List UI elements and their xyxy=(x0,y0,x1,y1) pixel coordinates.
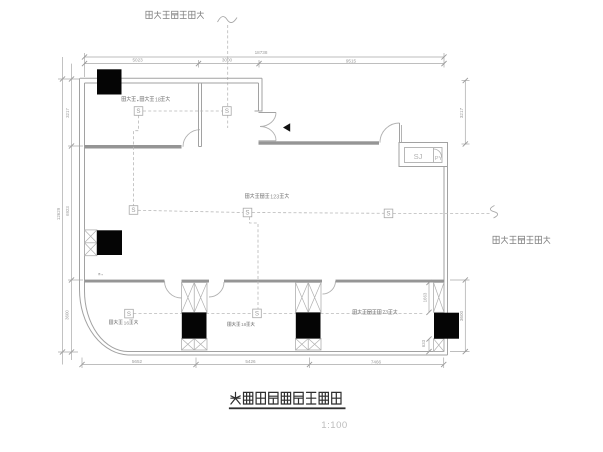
svg-text:3217: 3217 xyxy=(459,107,464,118)
svg-text:PY: PY xyxy=(435,156,443,162)
svg-text:S: S xyxy=(127,311,131,318)
svg-text:633: 633 xyxy=(421,339,426,347)
svg-text:SJ: SJ xyxy=(414,152,423,161)
svg-text:S: S xyxy=(255,311,259,318)
svg-text:5023: 5023 xyxy=(132,58,143,63)
svg-text:S: S xyxy=(386,211,390,218)
svg-text:3600: 3600 xyxy=(459,310,464,321)
svg-text:9515: 9515 xyxy=(346,58,357,63)
svg-text:1:100: 1:100 xyxy=(321,420,348,431)
svg-text:S: S xyxy=(225,108,229,115)
svg-text:S: S xyxy=(136,108,140,115)
svg-text:12629: 12629 xyxy=(56,207,61,220)
svg-text:18738: 18738 xyxy=(255,50,268,55)
svg-text:1663: 1663 xyxy=(423,292,428,302)
svg-text:16: 16 xyxy=(124,320,130,326)
svg-text:3217: 3217 xyxy=(65,108,70,118)
svg-text:23: 23 xyxy=(382,310,388,316)
svg-text:5426: 5426 xyxy=(245,359,256,364)
svg-text:3000: 3000 xyxy=(222,58,233,63)
svg-text:5652: 5652 xyxy=(132,359,143,364)
svg-text:18: 18 xyxy=(155,97,161,103)
svg-text:3600: 3600 xyxy=(65,310,70,320)
svg-text:S: S xyxy=(245,210,249,217)
svg-text:6923: 6923 xyxy=(65,206,70,216)
svg-text:123: 123 xyxy=(270,194,279,200)
svg-text:18: 18 xyxy=(241,322,247,327)
svg-text:S: S xyxy=(131,207,135,214)
svg-text:7466: 7466 xyxy=(371,360,382,365)
